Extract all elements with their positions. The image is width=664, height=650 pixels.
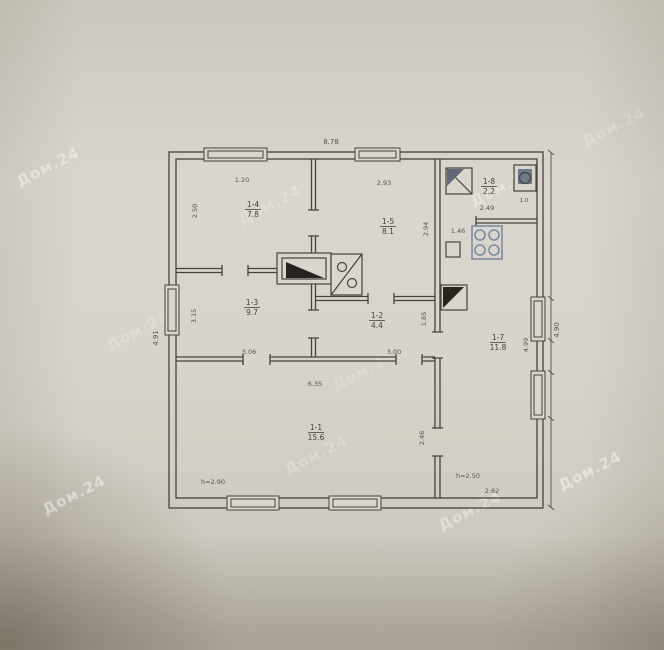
dimension-texts: 8.78 4.91 4.90 1.20 2.50 2.93 2.94 2.49 …: [152, 138, 561, 495]
room-label-1-8: 1-8 2.2: [481, 177, 497, 196]
dim-r12-right: 1.85: [420, 312, 428, 326]
dim-r11-right: 2.46: [418, 431, 426, 445]
dim-total-height-left: 4.91: [152, 330, 160, 346]
dim-r17-right: 4.99: [522, 338, 530, 352]
sink-icon: [446, 242, 460, 257]
wall-v1b: [308, 284, 319, 357]
window-top-left: [204, 148, 267, 161]
boiler-icon: [331, 254, 362, 295]
furnace-icon: [277, 253, 331, 284]
room-label-1-2: 1-2 4.4: [369, 311, 385, 330]
room-number: 1-7: [492, 333, 504, 342]
wall-h4: [476, 216, 537, 226]
room-area: 8.1: [382, 227, 394, 236]
window-right-upper: [531, 297, 545, 341]
wall-v2: [432, 159, 443, 498]
room-label-1-3: 1-3 9.7: [244, 298, 260, 317]
gas-stove-icon: [472, 226, 502, 259]
water-heater-icon: [514, 165, 536, 191]
dim-r11-top: 6.35: [308, 380, 322, 388]
stove-heater-icon: [441, 285, 467, 310]
dim-r15-top: 2.93: [377, 179, 391, 187]
dim-total-width: 8.78: [323, 138, 339, 146]
room-number: 1-3: [246, 298, 258, 307]
dim-r15-right: 2.94: [422, 222, 430, 236]
dim-total-height-right: 4.90: [553, 322, 561, 338]
height-note-r11: h=2.90: [201, 478, 225, 486]
window-top-middle: [355, 148, 400, 161]
room-area: 15.6: [308, 433, 325, 442]
room-area: 2.2: [483, 187, 495, 196]
room-label-1-5: 1-5 8.1: [380, 217, 396, 236]
room-number: 1-5: [382, 217, 394, 226]
room-label-1-1: 1-1 15.6: [308, 423, 325, 442]
room-area: 11.8: [490, 343, 507, 352]
windows: [165, 148, 545, 510]
room-number: 1-2: [371, 311, 383, 320]
room-label-1-4: 1-4 7.8: [245, 200, 261, 219]
room-area: 7.8: [247, 210, 259, 219]
room-number: 1-4: [247, 200, 259, 209]
window-right-lower: [531, 371, 545, 419]
dim-r17-kitchen: 1.46: [451, 227, 465, 235]
room-area: 4.4: [371, 321, 383, 330]
room-area: 9.7: [246, 308, 258, 317]
dim-r12-bottom: 3.00: [387, 348, 401, 356]
dim-r18-bottom: 2.49: [480, 204, 494, 212]
floor-plan-photo: Дом.24 Дом.24 Дом.24 Дом.24 Дом.24 Дом.2…: [0, 0, 664, 650]
dim-r13-bottom: 3.06: [242, 348, 256, 356]
window-bottom-left: [227, 496, 279, 510]
window-bottom-right: [329, 496, 381, 510]
dim-r17-bottom: 2.62: [485, 487, 499, 495]
dim-r18-fixture: 1.0: [520, 198, 529, 204]
dim-r13-left: 3.15: [190, 309, 198, 323]
floor-plan-drawing: 1-4 7.8 1-5 8.1 1-8 2.2 1-7 11.8 1-3: [0, 0, 664, 650]
height-note-r17: h=2.50: [456, 472, 480, 480]
shower-icon: [446, 168, 472, 194]
room-number: 1-8: [483, 177, 495, 186]
room-number: 1-1: [310, 423, 322, 432]
dim-r14-top: 1.20: [235, 176, 249, 184]
room-label-1-7: 1-7 11.8: [490, 333, 507, 352]
dim-r14-left: 2.50: [191, 204, 199, 218]
window-left: [165, 285, 179, 335]
